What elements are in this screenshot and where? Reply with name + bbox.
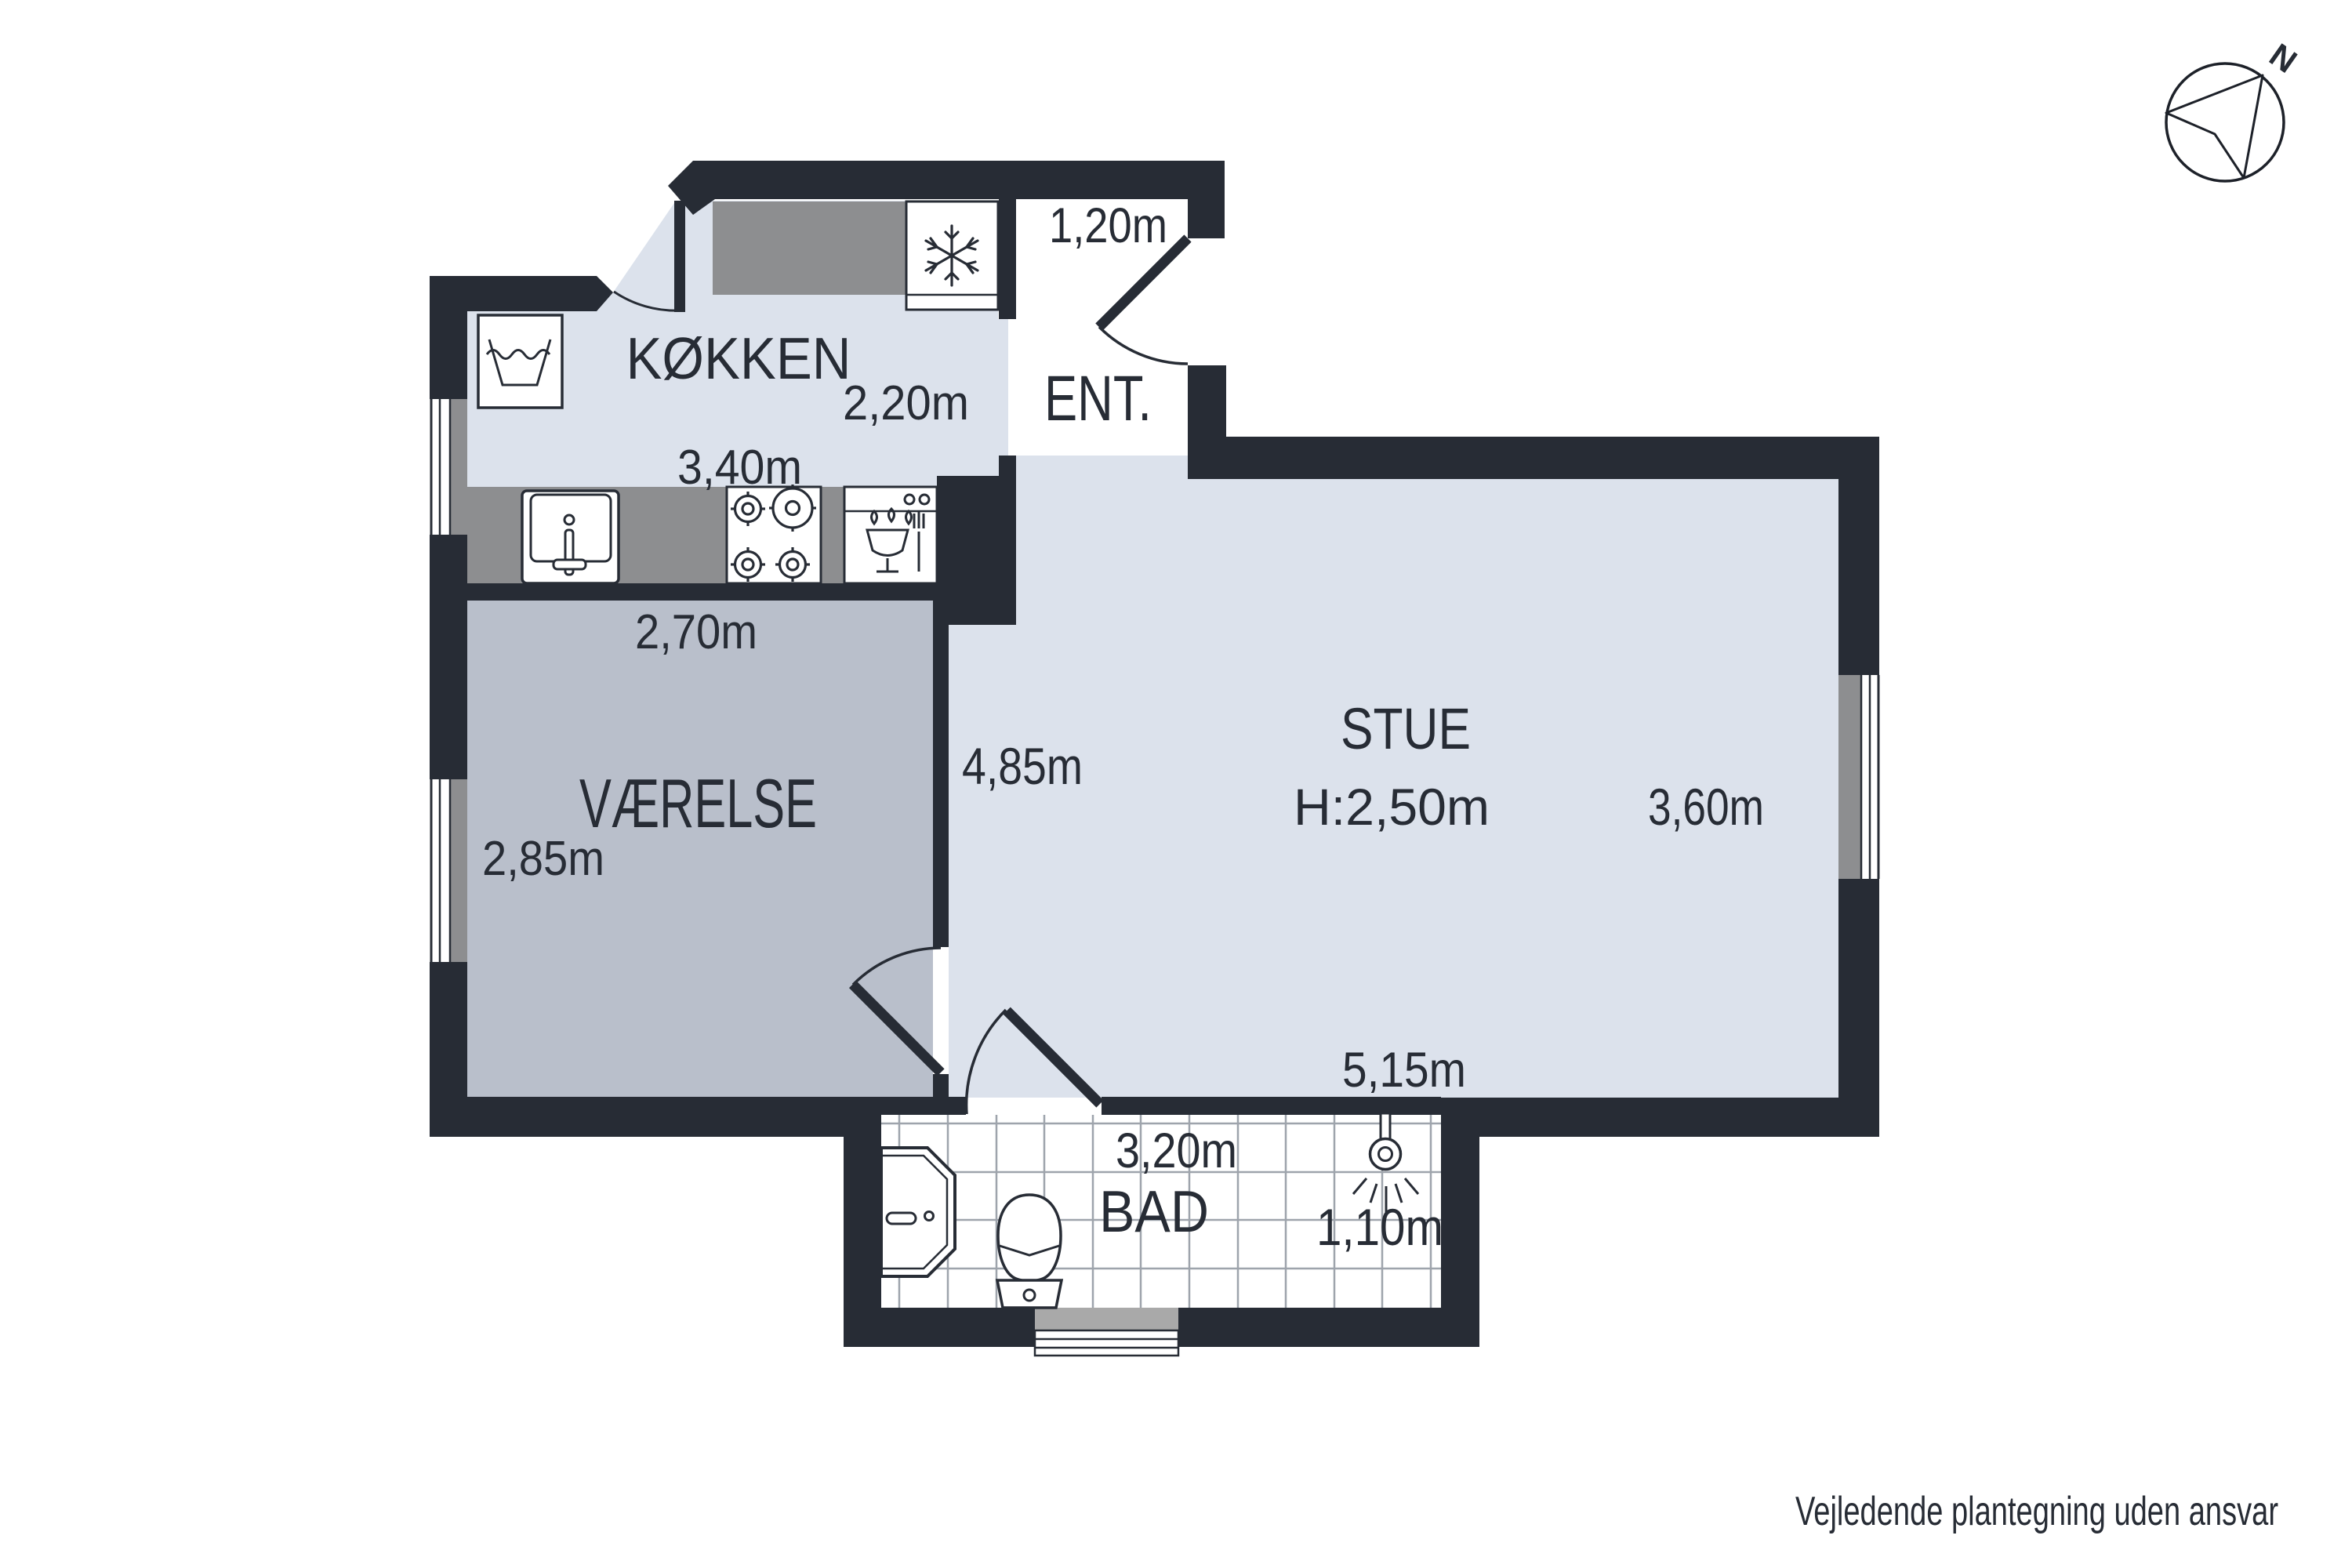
svg-text:STUE: STUE: [1341, 696, 1471, 761]
svg-text:3,60m: 3,60m: [1648, 778, 1764, 836]
svg-text:3,40m: 3,40m: [677, 441, 802, 495]
svg-text:BAD: BAD: [1099, 1178, 1209, 1244]
svg-text:2,85m: 2,85m: [482, 832, 604, 886]
svg-text:KØKKEN: KØKKEN: [626, 325, 851, 391]
svg-text:Vejledende plantegning uden an: Vejledende plantegning uden ansvar: [1795, 1489, 2278, 1534]
svg-text:H:2,50m: H:2,50m: [1294, 778, 1490, 836]
svg-text:VÆRELSE: VÆRELSE: [579, 764, 817, 842]
svg-text:2,20m: 2,20m: [843, 376, 969, 430]
svg-text:2,70m: 2,70m: [635, 605, 757, 659]
svg-text:N: N: [2263, 36, 2303, 80]
svg-text:5,15m: 5,15m: [1342, 1043, 1466, 1098]
svg-text:3,20m: 3,20m: [1116, 1123, 1237, 1178]
svg-text:1,20m: 1,20m: [1049, 198, 1167, 253]
svg-text:ENT.: ENT.: [1044, 363, 1152, 434]
svg-text:1,10m: 1,10m: [1316, 1198, 1443, 1256]
svg-text:4,85m: 4,85m: [962, 737, 1083, 795]
